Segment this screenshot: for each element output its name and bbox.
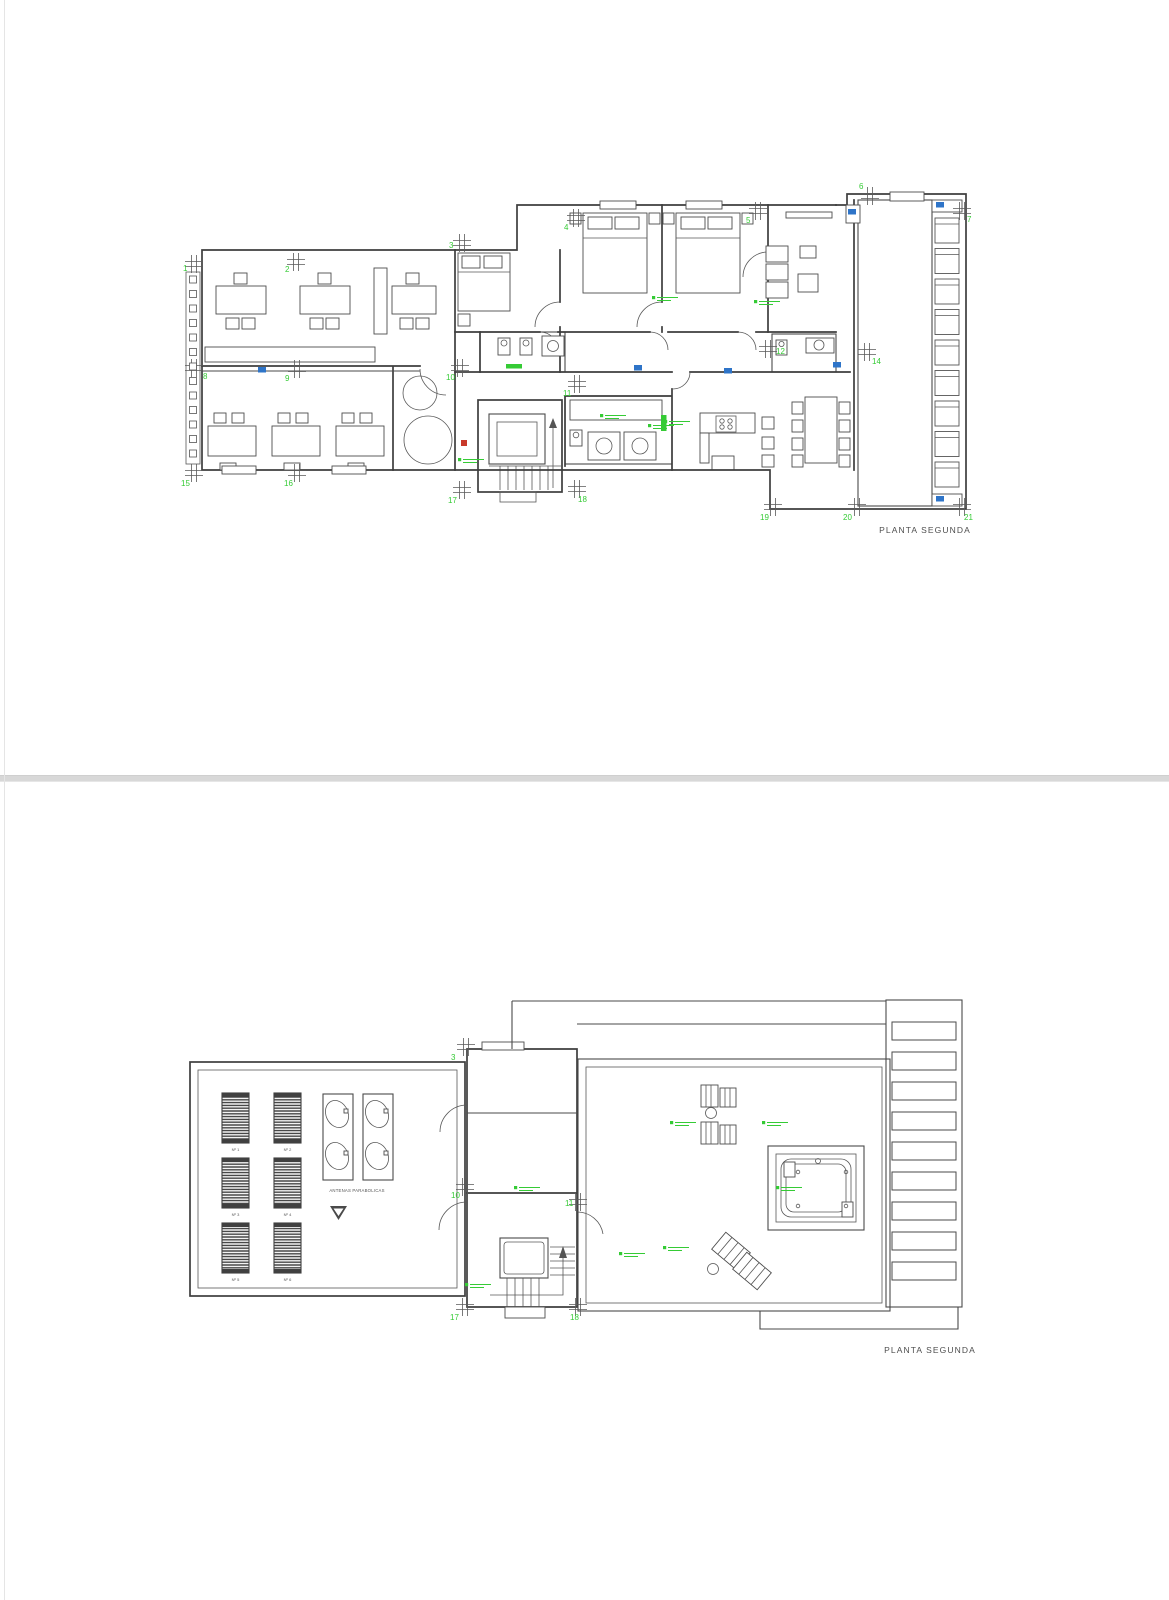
floor-plan-drawing-planta-segunda: 1234567891011121415161718192021 PLANTA S… [0,0,1169,775]
grid-marker-number: 3 [449,241,454,250]
blue-fixture-mark [634,365,642,371]
blue-fixture-mark [936,202,944,208]
pergola-slat [892,1052,956,1070]
blue-fixture-mark [833,362,841,368]
solar-panel-label: Nº 5 [232,1277,240,1282]
grid-marker-number: 8 [203,372,208,381]
grid-marker-number: 12 [776,347,785,356]
solar-panel [222,1223,249,1273]
grid-marker-number: 16 [284,479,293,488]
pergola-slat [892,1232,956,1250]
terrace-lounger [935,401,959,426]
pergola-slat [892,1262,956,1280]
wall-tick [190,450,197,457]
grid-marker-cross [457,1038,475,1056]
terrace-lounger [935,340,959,365]
solar-panel [274,1158,301,1208]
green-annotation-mark [465,1283,468,1286]
dining-table [792,397,850,467]
pergola-slat [892,1082,956,1100]
grid-marker-number: 19 [760,513,769,522]
antenna-label: ANTENAS PARABOLICAS [329,1188,384,1193]
grid-marker-number: 15 [181,479,190,488]
wall-tick [190,291,197,298]
wall-tick [190,407,197,414]
terrace-lounger [935,371,959,396]
grid-marker-number: 17 [448,496,457,505]
kitchen [700,413,774,470]
wall-tick [190,305,197,312]
bedrooms-block [455,201,850,470]
green-annotation-mark [754,300,757,303]
green-annotation-mark [600,414,603,417]
terrace-lounger [935,279,959,304]
grid-marker-number: 20 [843,513,852,522]
grid-marker-number: 9 [285,374,290,383]
grid-marker-number: 11 [563,389,572,398]
green-annotation-mark [762,1121,765,1124]
green-annotation-mark [664,420,667,423]
green-annotation-mark [776,1186,779,1189]
wall-tick [190,392,197,399]
pergola-slat [892,1172,956,1190]
sun-loungers-bottom [708,1232,772,1289]
sun-loungers-top [701,1085,736,1144]
terrace-lounger [935,218,959,243]
wall-tick [190,363,197,370]
green-annotation-mark [648,424,651,427]
grid-marker-number: 6 [859,182,864,191]
grid-marker-cross [759,340,777,358]
blue-fixture-mark [258,367,266,373]
grid-marker-number: 10 [451,1191,460,1200]
floor-plan-page-1: 1234567891011121415161718192021 PLANTA S… [0,0,1169,775]
wall-tick [190,349,197,356]
living-room [766,212,832,298]
grid-marker-number: 10 [446,373,455,382]
roof-plan-drawing-planta-segunda: ANTENAS PARABOLICAS [0,782,1169,1600]
grid-marker-number: 5 [746,216,751,225]
green-annotation-mark [458,458,461,461]
left-wing-rooms [186,250,455,474]
solar-panel [274,1093,301,1143]
terrace-lounger [935,310,959,335]
grid-marker-number: 21 [964,513,973,522]
grid-marker-number: 3 [451,1053,456,1062]
wall-tick [190,320,197,327]
solar-panel [222,1158,249,1208]
grid-marker-number: 1 [183,264,188,273]
solar-panel [274,1223,301,1273]
roof-boundary-lines [512,1001,958,1329]
solar-panel-label: Nº 2 [284,1147,292,1152]
grid-marker-number: 4 [564,223,569,232]
green-annotation-mark [514,1186,517,1189]
wall-tick [190,334,197,341]
grid-marker-number: 18 [570,1313,579,1322]
grid-marker-cross [861,187,879,205]
green-annotation-mark [670,1121,673,1124]
red-fixture-mark [461,440,467,446]
pergola-slat [892,1142,956,1160]
green-annotation-mark [652,296,655,299]
wall-tick [190,276,197,283]
grid-marker-number: 18 [578,495,587,504]
blue-fixture-mark [848,209,856,215]
solar-panel-label: Nº 1 [232,1147,240,1152]
pergola-slat [892,1112,956,1130]
plan-title-2: PLANTA SEGUNDA [884,1345,976,1355]
blue-fixture-mark [724,368,732,374]
vestibule-hall [403,369,446,410]
pergola-slat [892,1022,956,1040]
terrace-lounger [935,249,959,274]
grid-marker-number: 2 [285,265,290,274]
stair-core-elevator [478,400,562,502]
grid-marker-number: 7 [967,215,972,224]
grid-marker-cross [185,255,203,273]
pergola-slat [892,1202,956,1220]
floor-plan-page-2: ANTENAS PARABOLICAS [0,782,1169,1600]
jacuzzi [768,1146,864,1230]
solar-panel-label: Nº 3 [232,1212,240,1217]
solar-panel-label: Nº 6 [284,1277,292,1282]
solar-panel-label: Nº 4 [284,1212,292,1217]
terrace-lounger [935,462,959,487]
wall-tick [190,436,197,443]
blue-fixture-mark [936,496,944,502]
green-annotation-mark [663,1246,666,1249]
terrace-lounger [935,432,959,457]
wall-tick [190,378,197,385]
grid-marker-number: 14 [872,357,881,366]
plan-title-1: PLANTA SEGUNDA [879,525,971,535]
grid-marker-number: 11 [565,1199,574,1208]
page-edge-line [4,0,5,1600]
wall-tick [190,421,197,428]
grid-marker-cross [288,360,306,378]
page-divider [0,775,1169,782]
grid-marker-cross [287,253,305,271]
green-annotation-mark [619,1252,622,1255]
solar-panel [222,1093,249,1143]
grid-marker-number: 17 [450,1313,459,1322]
